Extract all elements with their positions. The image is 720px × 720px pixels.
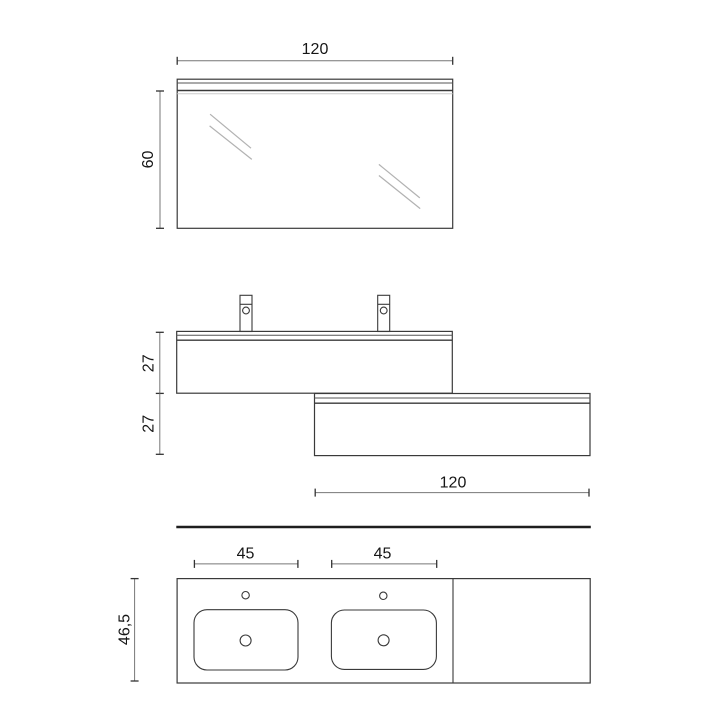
svg-text:46,5: 46,5 <box>117 614 134 645</box>
svg-text:60: 60 <box>140 151 157 169</box>
svg-text:27: 27 <box>141 354 158 372</box>
svg-text:120: 120 <box>440 475 467 492</box>
svg-text:45: 45 <box>237 546 255 563</box>
svg-text:120: 120 <box>302 41 329 58</box>
svg-text:45: 45 <box>374 546 392 563</box>
svg-text:27: 27 <box>141 415 158 433</box>
